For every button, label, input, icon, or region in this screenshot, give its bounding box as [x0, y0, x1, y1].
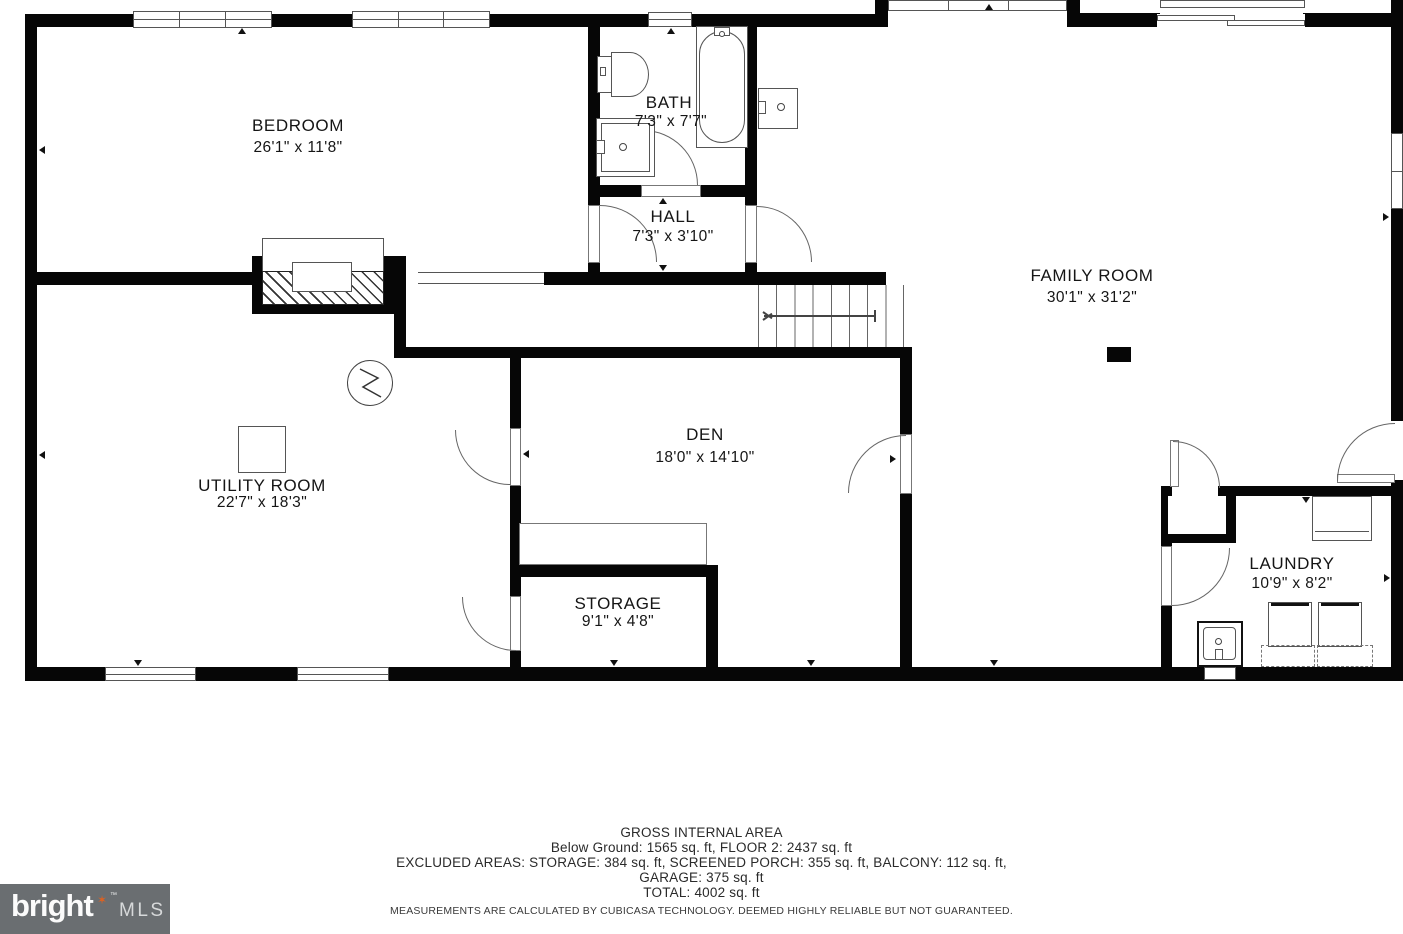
window-mullion — [225, 12, 226, 27]
laundry-sink-pedestal — [1204, 667, 1236, 680]
tick-marker — [807, 660, 815, 666]
logo-mls-text: MLS — [119, 900, 166, 922]
fireplace-firebox — [292, 262, 352, 292]
area-line-excluded: EXCLUDED AREAS: STORAGE: 384 sq. ft, SCR… — [0, 855, 1403, 870]
top-exterior-wall-mid — [1080, 13, 1160, 27]
family-room-label: FAMILY ROOM — [1030, 266, 1153, 286]
area-line-garage: GARAGE: 375 sq. ft — [0, 870, 1403, 885]
hall-familyroom-door-leaf — [745, 205, 757, 263]
stair-direction-arrow — [764, 315, 876, 317]
toilet-flush-button — [600, 67, 606, 76]
utility-window-right — [297, 667, 389, 681]
den-dimensions: 18'0" x 14'10" — [655, 449, 754, 467]
tick-marker — [39, 146, 45, 154]
left-exterior-wall — [25, 14, 37, 681]
tick-marker — [890, 455, 896, 463]
bath-vanity-faucet — [596, 140, 605, 154]
logo-star-icon: ✶ — [97, 893, 107, 907]
tick-marker — [667, 28, 675, 34]
logo-trademark: ™ — [110, 892, 117, 899]
bedroom-window-right — [352, 11, 490, 28]
family-room-dimensions: 30'1" x 31'2" — [1047, 289, 1137, 307]
tick-marker — [990, 660, 998, 666]
bumpout-left-jamb — [875, 0, 888, 27]
laundry-sink-faucet — [1215, 649, 1223, 660]
laundry-sink-drain — [1215, 638, 1222, 645]
den-right-wall — [900, 358, 912, 667]
window-mullion — [948, 1, 949, 10]
bath-dimensions: 7'3" x 7'7" — [635, 113, 707, 131]
logo-brand-text: bright — [11, 888, 93, 924]
exterior-door-swing-arc — [1337, 423, 1395, 481]
window-mullion — [298, 674, 388, 675]
utility-storage-door-swing-arc — [462, 597, 516, 651]
toilet-bowl — [611, 52, 649, 97]
dryer-clearance-dashed — [1317, 645, 1373, 667]
window-mullion — [398, 12, 399, 27]
storage-right-wall — [706, 565, 718, 667]
window-mullion — [179, 12, 180, 27]
tick-marker — [39, 451, 45, 459]
laundry-cabinet — [1312, 496, 1372, 541]
top-exterior-wall-right — [1303, 13, 1403, 27]
storage-top-wall — [510, 565, 718, 577]
hall-label: HALL — [651, 207, 696, 227]
storage-label: STORAGE — [574, 594, 661, 614]
window-mullion — [443, 12, 444, 27]
porch-window-frame — [1160, 0, 1305, 8]
water-heater — [238, 426, 286, 473]
window-mullion — [649, 19, 691, 20]
utility-room-label: UTILITY ROOM — [198, 476, 326, 496]
window-mullion — [134, 19, 271, 20]
tick-marker — [985, 4, 993, 10]
washer — [1268, 602, 1312, 647]
utility-window-left — [105, 667, 196, 681]
hall-bottom-wall — [588, 272, 886, 285]
family-room-bumpout-windows — [888, 0, 1067, 11]
tick-marker — [610, 660, 618, 666]
bedroom-label: BEDROOM — [252, 116, 344, 136]
wet-bar-drain — [777, 103, 785, 111]
family-room-right-window — [1391, 133, 1403, 209]
den-familyroom-door-swing-arc — [848, 435, 906, 493]
laundry-label: LAUNDRY — [1249, 554, 1334, 574]
dryer — [1318, 602, 1362, 647]
right-exterior-wall — [1391, 0, 1403, 681]
storage-dimensions: 9'1" x 4'8" — [582, 613, 654, 631]
window-mullion — [106, 674, 195, 675]
laundry-dimensions: 10'9" x 8'2" — [1251, 575, 1332, 593]
stair-arrow-tail — [874, 310, 876, 322]
washer-clearance-dashed — [1261, 645, 1315, 667]
gross-internal-area-title: GROSS INTERNAL AREA — [0, 825, 1403, 840]
sump-pump-symbol — [347, 360, 393, 406]
cased-opening — [418, 272, 544, 284]
wall-segment-nook-right — [544, 272, 590, 285]
storage-shelf-outline — [519, 523, 707, 565]
window-mullion — [1008, 1, 1009, 10]
wet-bar-faucet — [758, 101, 766, 114]
utility-den-door-leaf — [510, 428, 521, 486]
bedroom-hall-door-leaf — [588, 205, 600, 263]
laundry-sink — [1197, 621, 1243, 667]
bumpout-right-jamb — [1067, 0, 1080, 27]
bedroom-dimensions: 26'1" x 11'8" — [253, 139, 342, 157]
washer-control-panel — [1271, 603, 1309, 606]
floor-plan: BEDROOM 26'1" x 11'8" BATH 7'3" x 7'7" H… — [0, 0, 1403, 934]
hall-dimensions: 7'3" x 3'10" — [632, 228, 713, 246]
tick-marker — [134, 660, 142, 666]
window-mullion — [353, 19, 489, 20]
tick-marker — [1302, 497, 1310, 503]
bottom-exterior-wall — [25, 667, 1403, 681]
sump-zigzag-icon — [348, 361, 392, 405]
support-column — [1107, 347, 1131, 362]
bathtub-drain — [719, 31, 725, 37]
utility-den-door-swing-arc — [455, 430, 510, 485]
cabinet-line — [1315, 531, 1369, 532]
bath-label: BATH — [646, 93, 692, 113]
utility-room-dimensions: 22'7" x 18'3" — [217, 494, 307, 512]
sliding-door-panel-inner — [1227, 20, 1305, 26]
laundry-closet-interior — [1168, 496, 1226, 534]
bath-window — [648, 12, 692, 27]
hall-familyroom-door-swing-arc — [757, 206, 812, 262]
tick-marker — [659, 265, 667, 271]
tick-marker — [1383, 213, 1389, 221]
dryer-control-panel — [1321, 603, 1359, 606]
laundry-door-leaf — [1161, 546, 1172, 606]
bath-door-leaf — [641, 185, 701, 197]
window-mullion — [1392, 171, 1402, 172]
area-line-total: TOTAL: 4002 sq. ft — [0, 885, 1403, 900]
area-line-floors: Below Ground: 1565 sq. ft, FLOOR 2: 2437… — [0, 840, 1403, 855]
laundry-door-swing-arc — [1172, 548, 1230, 606]
disclaimer-text: MEASUREMENTS ARE CALCULATED BY CUBICASA … — [0, 905, 1403, 917]
tick-marker — [659, 198, 667, 204]
den-top-wall — [405, 347, 912, 358]
den-label: DEN — [686, 425, 724, 445]
tick-marker — [1384, 574, 1390, 582]
fireplace-bottom-wall — [252, 304, 406, 314]
bright-mls-logo: bright ✶ ™ MLS — [0, 884, 170, 934]
bath-vanity-drain — [619, 143, 627, 151]
tick-marker — [238, 28, 246, 34]
laundry-closet-door-swing-arc — [1173, 441, 1220, 488]
tick-marker — [523, 450, 529, 458]
bedroom-bottom-wall — [25, 272, 254, 285]
sliding-door-panel-outer — [1157, 15, 1235, 21]
bedroom-window-left — [133, 11, 272, 28]
